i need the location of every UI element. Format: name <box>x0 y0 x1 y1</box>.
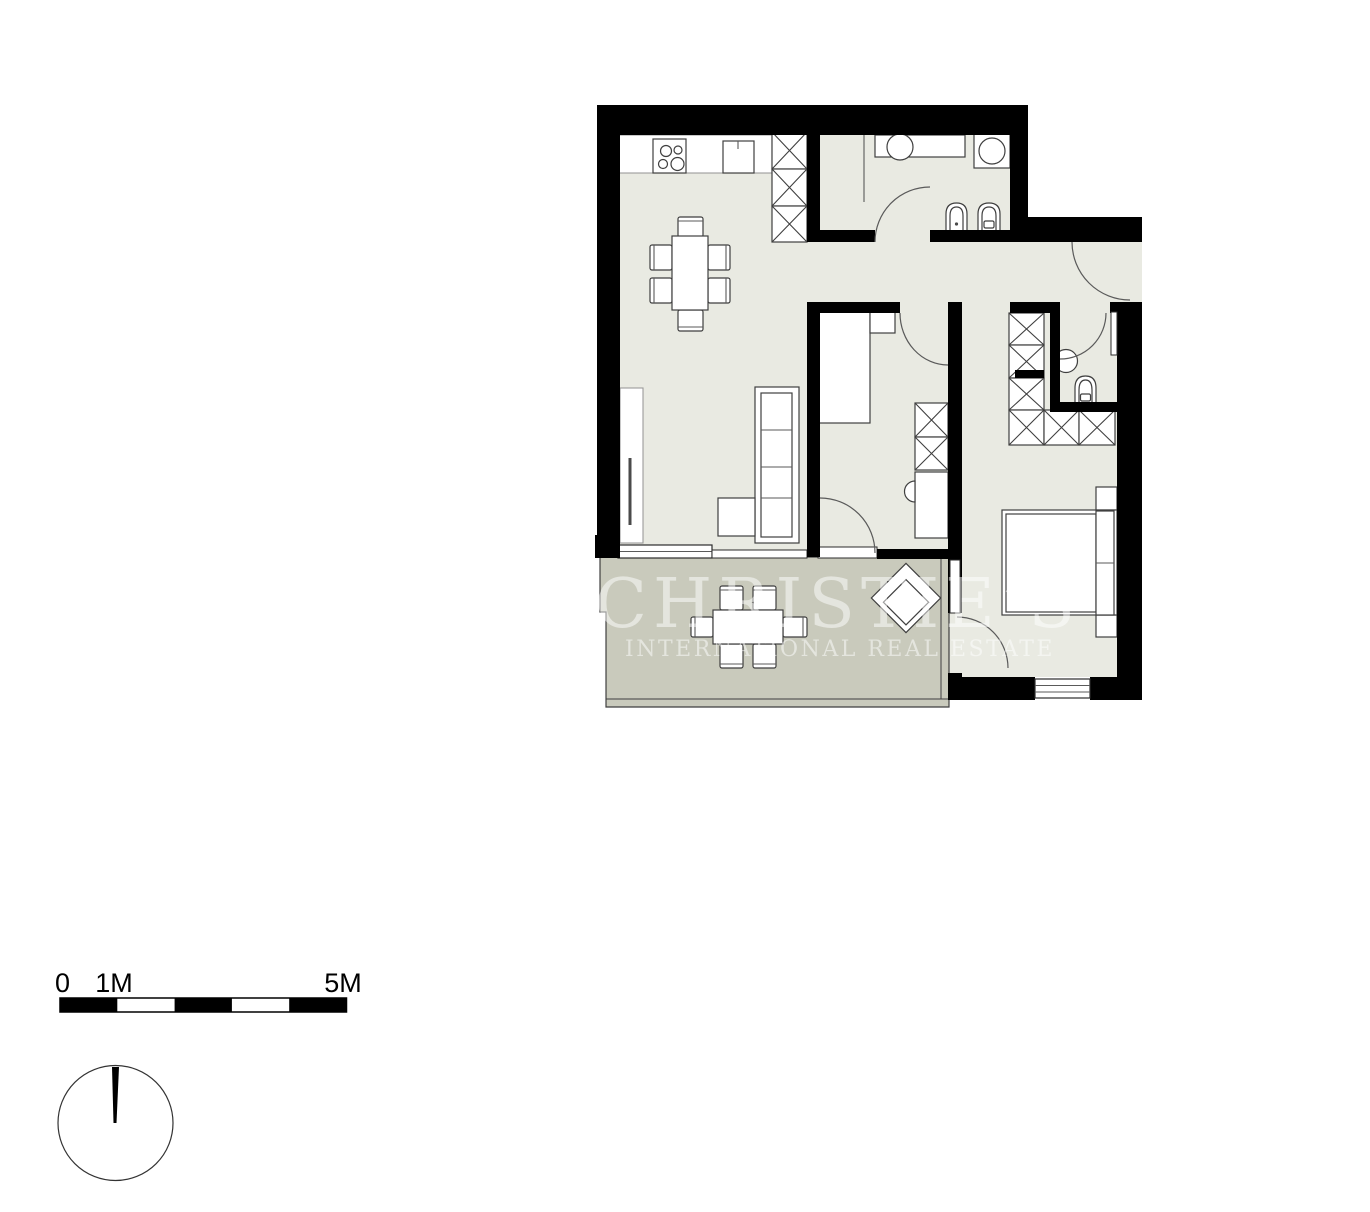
compass <box>58 1066 173 1181</box>
dining-chair <box>678 310 703 331</box>
dining-chair <box>708 278 730 303</box>
wall-bath-bottom-right <box>930 230 1010 242</box>
dining-chair <box>650 245 672 270</box>
watermark: CHRISTIE’S INTERNATIONAL REAL ESTATE <box>595 565 1081 662</box>
wall-kitchen-bath <box>807 132 820 240</box>
single-bed <box>818 312 870 423</box>
wall-middle-room-bottom <box>877 549 950 559</box>
scale-segment <box>60 998 117 1012</box>
desk <box>915 472 948 538</box>
scale-label-1m: 1M <box>95 968 133 998</box>
floor-plan-page: CHRISTIE’S INTERNATIONAL REAL ESTATE 0 1… <box>0 0 1370 1212</box>
wall-corner-post <box>595 535 618 558</box>
stove-icon <box>653 139 686 173</box>
scale-segment <box>175 998 232 1012</box>
headboard-cushion <box>1096 615 1117 637</box>
bedroom-window <box>1035 679 1090 698</box>
wall-top <box>597 105 1028 135</box>
wall-bottom-left-seg <box>948 677 1035 700</box>
living-room-sliding-door <box>712 550 807 558</box>
wall-entrance-nook <box>1010 217 1142 242</box>
kitchen-tall-cabinet <box>772 132 807 242</box>
wall-middle-room-left <box>807 302 820 557</box>
north-needle-icon <box>112 1067 119 1123</box>
scale-segment <box>289 998 346 1012</box>
wall-middle-room-top <box>807 302 900 313</box>
sofa-chaise <box>718 498 755 536</box>
kitchen-sink-icon <box>723 141 754 173</box>
dining-table <box>672 236 708 310</box>
watermark-subtitle: INTERNATIONAL REAL ESTATE <box>625 637 1055 662</box>
washing-machine-icon <box>974 134 1010 168</box>
middle-room-terrace-threshold <box>818 547 877 558</box>
outside-area <box>1028 100 1148 217</box>
dining-chair <box>650 278 672 303</box>
tv-icon <box>629 458 632 525</box>
wall-bath-bottom-left <box>807 230 875 242</box>
scale-label-5m: 5M <box>324 968 362 998</box>
wall-wardrobe-divider <box>1015 370 1044 378</box>
entrance-door-leaf <box>1111 312 1117 355</box>
middle-room-wardrobe <box>915 403 948 470</box>
wall-bath-right <box>1010 135 1028 217</box>
wall-wc-bottom <box>1050 402 1117 412</box>
wall-wc-top-right <box>1110 302 1142 313</box>
wall-wc-left <box>1050 302 1060 410</box>
watermark-title: CHRISTIE’S <box>595 565 1081 644</box>
scale-label-0: 0 <box>55 968 70 998</box>
wall-bottom-right-seg <box>1090 677 1142 700</box>
floor-plan-image: CHRISTIE’S INTERNATIONAL REAL ESTATE 0 1… <box>0 0 1370 1212</box>
nightstand <box>870 311 895 333</box>
scale-bar: 0 1M 5M <box>55 968 362 1012</box>
dining-chair <box>678 217 703 237</box>
wall-left <box>597 105 620 558</box>
dining-chair <box>708 245 730 270</box>
headboard-cushion <box>1096 487 1117 510</box>
bathroom-vanity-icon <box>875 134 965 160</box>
wall-right <box>1117 310 1142 700</box>
tv-unit <box>620 388 643 543</box>
